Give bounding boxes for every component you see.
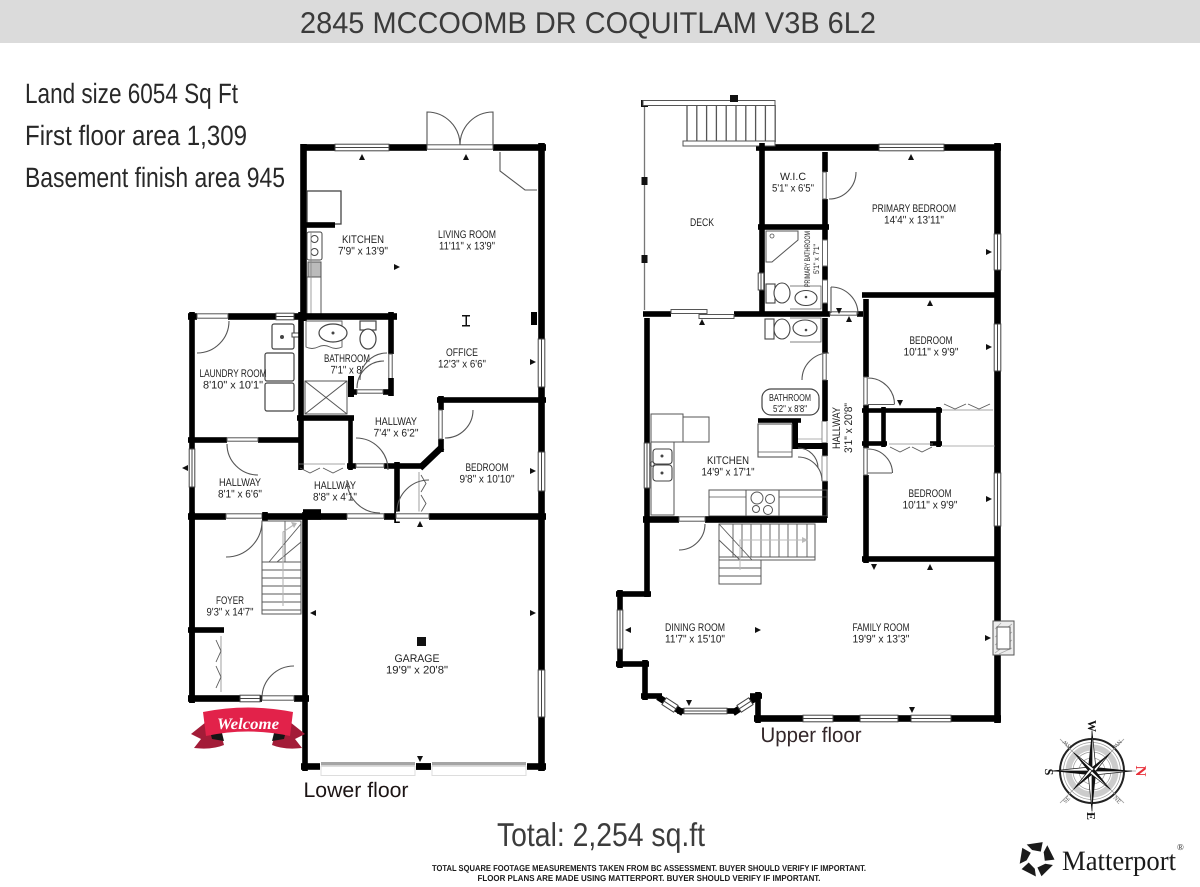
svg-text:5'2" x 8'8": 5'2" x 8'8" (773, 404, 807, 415)
svg-text:11'7" x 15'10": 11'7" x 15'10" (665, 634, 725, 646)
svg-text:TOTAL SQUARE FOOTAGE MEASUREME: TOTAL SQUARE FOOTAGE MEASUREMENTS TAKEN … (432, 863, 866, 873)
svg-text:Land size 6054 Sq Ft: Land size 6054 Sq Ft (25, 78, 238, 109)
svg-text:FLOOR PLANS ARE MADE USING MAT: FLOOR PLANS ARE MADE USING MATTERPORT. B… (478, 873, 821, 883)
svg-text:Lower floor: Lower floor (304, 779, 409, 802)
svg-text:GARAGE: GARAGE (395, 653, 440, 665)
svg-text:PRIMARY BEDROOM: PRIMARY BEDROOM (872, 203, 956, 215)
svg-text:5'1" x 7'1": 5'1" x 7'1" (812, 244, 821, 274)
svg-text:BATHROOM: BATHROOM (324, 353, 370, 365)
svg-text:LIVING ROOM: LIVING ROOM (438, 229, 496, 241)
svg-text:8'1" x 6'6": 8'1" x 6'6" (218, 489, 262, 501)
svg-text:Upper floor: Upper floor (761, 724, 862, 747)
svg-text:Total: 2,254 sq.ft: Total: 2,254 sq.ft (497, 816, 705, 853)
svg-text:Basement finish area 945: Basement finish area 945 (25, 162, 285, 193)
svg-text:KITCHEN: KITCHEN (342, 234, 384, 246)
svg-text:7'4" x 6'2": 7'4" x 6'2" (374, 428, 419, 440)
svg-text:FOYER: FOYER (216, 595, 244, 607)
svg-text:BEDROOM: BEDROOM (466, 462, 509, 474)
svg-text:12'3" x 6'6": 12'3" x 6'6" (438, 359, 486, 371)
svg-text:10'11" x 9'9": 10'11" x 9'9" (903, 500, 958, 512)
svg-text:KITCHEN: KITCHEN (707, 455, 749, 467)
svg-text:NW: NW (1111, 738, 1123, 750)
svg-text:NE: NE (1112, 795, 1122, 805)
svg-text:8'8" x 4'1": 8'8" x 4'1" (313, 492, 357, 504)
svg-text:7'1" x 8': 7'1" x 8' (331, 365, 364, 377)
svg-text:PRIMARY BATHROOM: PRIMARY BATHROOM (803, 231, 812, 287)
svg-text:BEDROOM: BEDROOM (909, 488, 952, 500)
svg-text:19'9" x 20'8": 19'9" x 20'8" (386, 665, 448, 677)
svg-text:7'9" x 13'9": 7'9" x 13'9" (338, 246, 388, 258)
svg-text:E: E (1084, 812, 1098, 820)
svg-text:W.I.C: W.I.C (780, 171, 806, 183)
svg-text:9'3" x 14'7": 9'3" x 14'7" (207, 607, 254, 619)
svg-text:Matterport: Matterport (1062, 846, 1176, 877)
svg-text:®: ® (1177, 842, 1184, 852)
svg-text:10'11" x 9'9": 10'11" x 9'9" (904, 347, 959, 359)
svg-text:SE: SE (1063, 796, 1072, 805)
svg-text:8'10" x 10'1": 8'10" x 10'1" (203, 380, 263, 392)
svg-text:BATHROOM: BATHROOM (769, 393, 811, 404)
svg-text:2845 MCCOOMB DR COQUITLAM V3B: 2845 MCCOOMB DR COQUITLAM V3B 6L2 (300, 7, 876, 40)
svg-text:HALLWAY: HALLWAY (375, 416, 418, 428)
svg-text:SW: SW (1062, 738, 1073, 749)
svg-text:11'11" x 13'9": 11'11" x 13'9" (439, 241, 495, 253)
svg-text:9'8" x 10'10": 9'8" x 10'10" (460, 474, 515, 486)
svg-text:First floor area 1,309: First floor area 1,309 (25, 120, 247, 151)
svg-text:19'9" x 13'3": 19'9" x 13'3" (853, 634, 910, 646)
svg-text:14'4" x 13'11": 14'4" x 13'11" (884, 215, 944, 227)
svg-text:HALLWAY: HALLWAY (831, 406, 843, 449)
svg-text:FAMILY ROOM: FAMILY ROOM (853, 622, 910, 634)
svg-text:14'9" x 17'1": 14'9" x 17'1" (702, 467, 755, 479)
svg-text:DINING ROOM: DINING ROOM (665, 622, 725, 634)
svg-text:N: N (1132, 766, 1148, 777)
svg-text:Welcome: Welcome (217, 716, 279, 733)
svg-text:W: W (1085, 720, 1099, 732)
svg-text:3'1" x 20'8": 3'1" x 20'8" (843, 403, 855, 453)
svg-text:HALLWAY: HALLWAY (219, 477, 262, 489)
svg-text:DECK: DECK (690, 217, 715, 229)
svg-text:5'1" x 6'5": 5'1" x 6'5" (772, 183, 814, 195)
svg-text:HALLWAY: HALLWAY (314, 480, 357, 492)
svg-text:S: S (1042, 769, 1056, 776)
svg-text:BEDROOM: BEDROOM (910, 335, 953, 347)
svg-text:OFFICE: OFFICE (446, 347, 478, 359)
svg-text:LAUNDRY ROOM: LAUNDRY ROOM (200, 368, 267, 380)
